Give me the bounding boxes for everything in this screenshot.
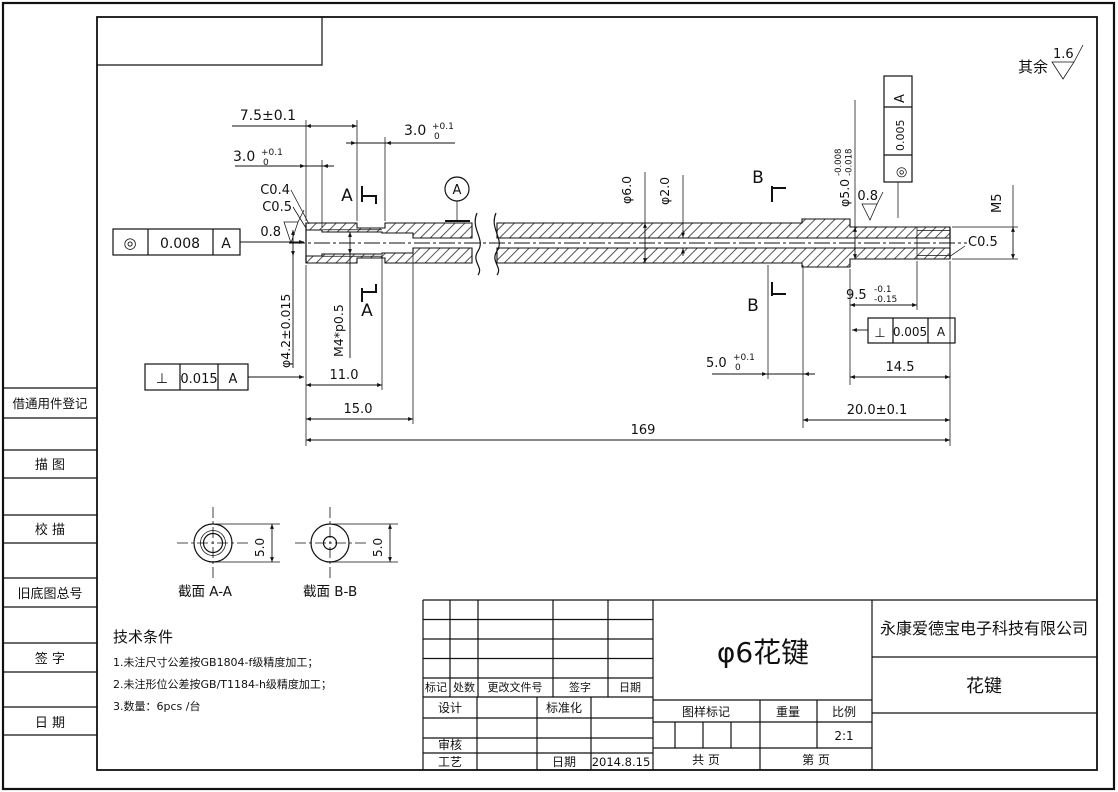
note-item-3: 3.数量：6pcs /台 xyxy=(113,699,200,713)
dim-dia-5-sub: -0.018 xyxy=(845,149,855,176)
surface-finish-prefix: 其余 xyxy=(1018,58,1048,76)
dim-5-0-sup: +0.1 xyxy=(733,353,755,363)
tb-rev-sign: 签字 xyxy=(569,680,591,694)
break-gap xyxy=(473,211,496,277)
tb-company: 永康爱德宝电子科技有限公司 xyxy=(880,619,1088,638)
dim-3-0-groove: 3.0 xyxy=(404,123,426,139)
dim-5-0-sub: 0 xyxy=(735,363,741,373)
tb-part-title: φ6花键 xyxy=(717,636,809,669)
outer-border xyxy=(3,3,1114,789)
extension-lines xyxy=(306,100,1018,446)
dim-c0-5-left: C0.5 xyxy=(262,200,292,215)
dim-20: 20.0±0.1 xyxy=(847,403,908,418)
dim-7-5: 7.5±0.1 xyxy=(240,108,296,124)
tb-rev-docno: 更改文件号 xyxy=(488,680,543,694)
cut-mark-a-top xyxy=(362,186,376,204)
tb-check-label: 审核 xyxy=(438,737,462,752)
note-item-1: 1.未注尺寸公差按GB1804-f级精度加工； xyxy=(113,655,318,669)
dim-ra-left: 0.8 xyxy=(260,225,281,240)
section-a-label: 截面 A-A xyxy=(178,584,233,600)
margin-label-old-drawing-no: 旧底图总号 xyxy=(17,586,82,602)
dim-9-5-sup: -0.1 xyxy=(874,285,892,295)
engineering-drawing-sheet: 借通用件登记 描 图 校 描 旧底图总号 签 字 日 期 其余 1.6 xyxy=(0,0,1118,792)
dim-3-0-depth-sub: 0 xyxy=(263,158,269,168)
gdt-conc-right-tol: 0.005 xyxy=(894,120,907,152)
gdt-conc-left-symbol: ◎ xyxy=(123,234,136,252)
tb-standardize-label: 标准化 xyxy=(546,701,582,715)
margin-label-check-trace: 校 描 xyxy=(35,522,65,538)
notes-title: 技术条件 xyxy=(113,628,173,646)
cut-mark-a-bottom xyxy=(362,284,376,302)
shaft-section-view xyxy=(289,211,967,277)
dim-169: 169 xyxy=(631,423,656,438)
tb-mark-label: 图样标记 xyxy=(682,704,730,719)
gdt-conc-left-tol: 0.008 xyxy=(160,236,200,252)
dim-15: 15.0 xyxy=(344,402,373,417)
gdt-perp-left-tol: 0.015 xyxy=(180,372,217,387)
margin-label-signature: 签 字 xyxy=(35,651,65,667)
tb-weight-label: 重量 xyxy=(776,705,800,719)
dim-3-0-depth-sup: +0.1 xyxy=(261,148,283,158)
dim-3-0-depth: 3.0 xyxy=(233,149,255,165)
datum-a-label: A xyxy=(453,183,462,198)
dimensions: 7.5±0.1 3.0 +0.1 0 3.0 +0.1 0 C0.4 C0.5 … xyxy=(232,108,1013,440)
dim-c0-5-right: C0.5 xyxy=(968,235,998,250)
technical-notes: 技术条件 1.未注尺寸公差按GB1804-f级精度加工； 2.未注形位公差按GB… xyxy=(113,628,332,713)
tb-date-label: 日期 xyxy=(552,755,576,769)
gdt-perp-right-tol: 0.005 xyxy=(893,325,927,339)
tb-page-no: 第 页 xyxy=(802,753,830,767)
dim-dia-5: φ5.0 xyxy=(837,179,852,207)
cut-label-a-top: A xyxy=(341,186,353,206)
margin-label-register: 借通用件登记 xyxy=(12,396,88,411)
section-a-dim: 5.0 xyxy=(253,538,267,557)
gdt-perp-left-symbol: ⊥ xyxy=(156,371,168,387)
cut-label-b-bottom: B xyxy=(747,296,759,316)
tb-rev-count: 处数 xyxy=(453,681,475,694)
section-view-b: 5.0 截面 B-B xyxy=(295,507,398,600)
gdt-conc-right-datum: A xyxy=(893,94,908,103)
margin-cell-lines xyxy=(3,388,97,735)
dim-ra-right: 0.8 xyxy=(857,189,878,204)
dim-3-0-groove-sub: 0 xyxy=(434,132,440,142)
shaft-top-wall-left xyxy=(306,223,472,238)
dim-9-5: 9.5 xyxy=(846,288,867,303)
dim-c0-4: C0.4 xyxy=(260,183,290,198)
cut-mark-b-bottom xyxy=(772,282,786,296)
section-b-dim: 5.0 xyxy=(371,538,385,557)
gdt-conc-right-symbol: ◎ xyxy=(894,167,909,178)
tb-design-label: 设计 xyxy=(438,701,462,715)
tb-rev-date: 日期 xyxy=(619,681,641,694)
tb-scale-label: 比例 xyxy=(832,705,856,719)
dim-11: 11.0 xyxy=(330,368,359,383)
dim-3-0-groove-sup: +0.1 xyxy=(432,122,454,132)
dim-dia-6: φ6.0 xyxy=(619,176,634,204)
dim-9-5-sub: -0.15 xyxy=(874,295,897,305)
dim-dia-4-2: φ4.2±0.015 xyxy=(278,294,293,368)
section-b-label: 截面 B-B xyxy=(303,584,357,600)
dim-m5: M5 xyxy=(990,194,1005,214)
cut-mark-b-top xyxy=(772,186,786,202)
shaft-top-wall-right xyxy=(497,219,950,238)
dim-14-5: 14.5 xyxy=(886,360,915,375)
dim-dia-2: φ2.0 xyxy=(657,177,672,205)
tb-process-label: 工艺 xyxy=(438,755,462,769)
drawing-frame: 借通用件登记 描 图 校 描 旧底图总号 签 字 日 期 xyxy=(3,3,1114,789)
tb-scale-value: 2:1 xyxy=(834,729,853,743)
top-left-register-box xyxy=(97,17,322,65)
section-cut-marks: A A B B A xyxy=(341,168,786,321)
cut-label-b-top: B xyxy=(752,168,764,188)
dim-5-0: 5.0 xyxy=(706,356,727,371)
general-surface-finish: 其余 1.6 xyxy=(1018,45,1083,79)
cut-label-a-bottom: A xyxy=(361,301,373,321)
gdt-perp-right-datum: A xyxy=(937,325,946,339)
section-views: 5.0 截面 A-A 5.0 截面 B-B xyxy=(177,507,398,600)
tb-date-value: 2014.8.15 xyxy=(592,755,651,769)
tb-total-pages: 共 页 xyxy=(692,753,720,767)
note-item-2: 2.未注形位公差按GB/T1184-h级精度加工； xyxy=(113,677,332,691)
margin-label-trace: 描 图 xyxy=(35,458,65,473)
margin-label-date: 日 期 xyxy=(35,716,65,731)
shaft-bottom-wall-right xyxy=(497,248,950,267)
title-block: 标记 处数 更改文件号 签字 日期 设计 标准化 审核 工艺 日期 2014.8… xyxy=(423,600,1097,770)
gdt-perp-right-symbol: ⊥ xyxy=(874,326,885,341)
gdt-perp-left-datum: A xyxy=(229,372,238,387)
dim-dia-5-sup: -0.008 xyxy=(834,149,844,176)
tb-rev-mark: 标记 xyxy=(425,680,447,694)
tb-part-name: 花键 xyxy=(966,676,1002,697)
gdt-conc-left-datum: A xyxy=(221,236,231,252)
shaft-bottom-wall-left xyxy=(306,248,472,263)
dim-m4: M4*p0.5 xyxy=(331,304,346,357)
section-view-a: 5.0 截面 A-A xyxy=(177,507,280,600)
surface-finish-value: 1.6 xyxy=(1053,47,1074,62)
